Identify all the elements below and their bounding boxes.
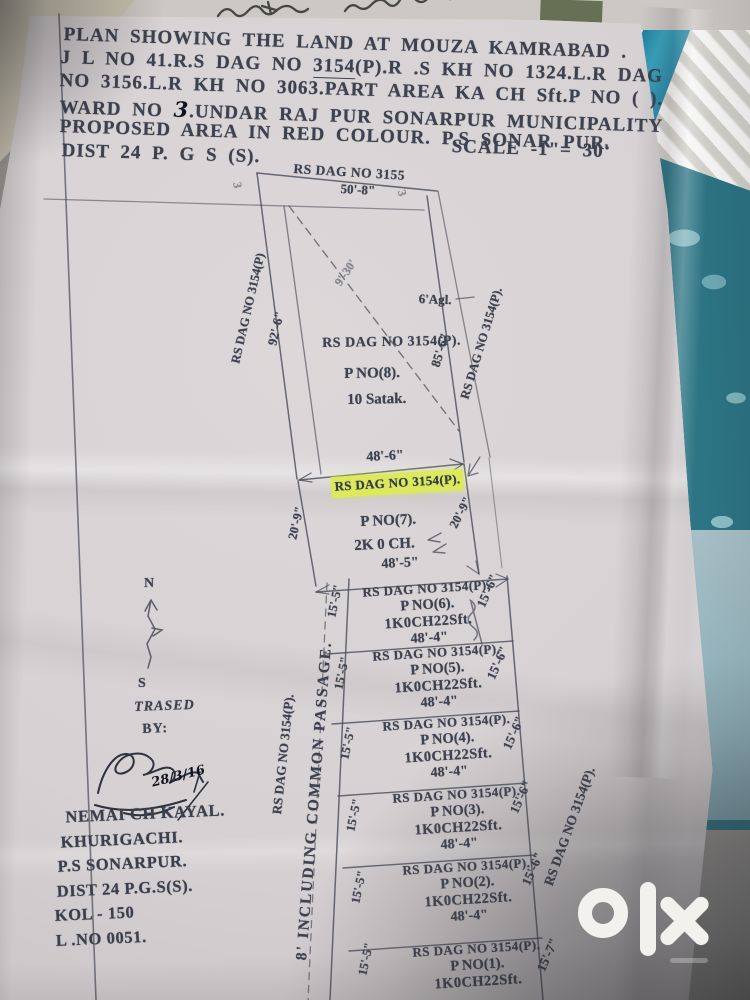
photographed-land-plan: PLAN SHOWING THE LAND AT MOUZA KAMRABAD … [0, 0, 750, 1000]
olx-fine-print [670, 958, 708, 963]
plot7-area: 2K 0 CH. [354, 535, 415, 555]
plot8-area: 10 Satak. [347, 391, 406, 409]
compass-south-label: S [138, 676, 146, 692]
olx-logo-o [578, 888, 628, 938]
by-label: BY: [142, 721, 168, 738]
trased-label: TRASED [134, 698, 195, 716]
underlined-dag-number: 3154 [313, 55, 356, 79]
dimension-48-5: 48'-5" [381, 555, 419, 573]
olx-watermark [558, 876, 728, 981]
dimension-48-6: 48'-6" [366, 448, 404, 466]
plot7-number: P NO(7). [360, 512, 417, 531]
plot8-dag-label: RS DAG NO 3154(P). [322, 334, 461, 352]
tracer-address-block: NEMAI CH KAYAL. KHURIGACHI. P.S SONARPUR… [50, 798, 231, 952]
agl-label: 6'Agl. [418, 291, 451, 308]
olx-logo-bar [640, 882, 656, 956]
handwritten-ward-number: 3 [173, 97, 189, 122]
compass-north-label: N [144, 576, 154, 592]
plot8-number: P NO(8). [344, 365, 400, 383]
top-dimension: 50'-8" [340, 181, 375, 199]
